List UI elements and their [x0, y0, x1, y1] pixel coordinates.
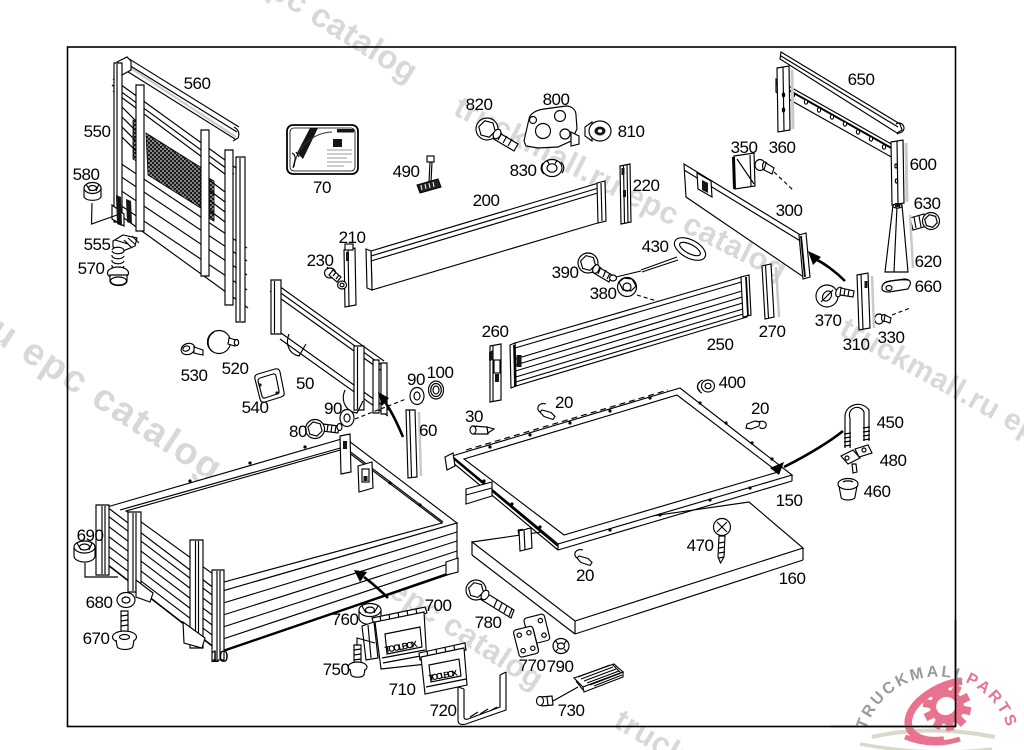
svg-text:20: 20 — [576, 566, 594, 585]
svg-text:250: 250 — [707, 335, 734, 354]
svg-text:330: 330 — [878, 328, 905, 347]
svg-text:90: 90 — [324, 399, 342, 418]
svg-text:360: 360 — [769, 138, 796, 157]
svg-text:490: 490 — [393, 162, 420, 181]
svg-text:830: 830 — [510, 161, 537, 180]
svg-text:100: 100 — [427, 363, 454, 382]
svg-text:810: 810 — [618, 122, 645, 141]
svg-text:430: 430 — [642, 237, 669, 256]
svg-text:680: 680 — [86, 593, 113, 612]
svg-text:90: 90 — [407, 370, 425, 389]
svg-text:650: 650 — [848, 70, 875, 89]
svg-text:310: 310 — [843, 335, 870, 354]
svg-text:380: 380 — [590, 284, 617, 303]
svg-text:370: 370 — [815, 311, 842, 330]
svg-text:520: 520 — [222, 359, 249, 378]
svg-text:790: 790 — [547, 657, 574, 676]
svg-text:30: 30 — [465, 407, 483, 426]
svg-text:540: 540 — [242, 398, 269, 417]
svg-text:700: 700 — [425, 596, 452, 615]
svg-text:550: 550 — [84, 122, 111, 141]
svg-text:20: 20 — [751, 399, 769, 418]
svg-text:450: 450 — [877, 413, 904, 432]
svg-text:480: 480 — [880, 451, 907, 470]
svg-text:800: 800 — [543, 90, 570, 109]
svg-text:820: 820 — [466, 95, 493, 114]
svg-text:80: 80 — [289, 422, 307, 441]
svg-text:260: 260 — [482, 322, 509, 341]
svg-text:160: 160 — [779, 569, 806, 588]
svg-text:70: 70 — [313, 178, 331, 197]
svg-text:770: 770 — [519, 656, 546, 675]
svg-text:780: 780 — [475, 613, 502, 632]
svg-text:200: 200 — [473, 191, 500, 210]
svg-text:580: 580 — [73, 165, 100, 184]
svg-text:470: 470 — [687, 536, 714, 555]
svg-text:10: 10 — [210, 647, 228, 666]
svg-text:560: 560 — [184, 74, 211, 93]
svg-text:760: 760 — [332, 610, 359, 629]
svg-text:150: 150 — [776, 491, 803, 510]
svg-text:270: 270 — [759, 322, 786, 341]
svg-text:690: 690 — [77, 526, 104, 545]
svg-text:750: 750 — [323, 660, 350, 679]
svg-text:50: 50 — [296, 374, 314, 393]
svg-text:350: 350 — [731, 138, 758, 157]
svg-text:670: 670 — [83, 629, 110, 648]
svg-text:400: 400 — [719, 373, 746, 392]
svg-text:660: 660 — [915, 277, 942, 296]
svg-text:60: 60 — [419, 421, 437, 440]
svg-text:555: 555 — [84, 235, 111, 254]
svg-text:630: 630 — [914, 194, 941, 213]
svg-text:710: 710 — [389, 680, 416, 699]
svg-text:220: 220 — [633, 176, 660, 195]
svg-text:460: 460 — [864, 482, 891, 501]
svg-text:730: 730 — [558, 701, 585, 720]
svg-text:20: 20 — [555, 393, 573, 412]
svg-text:300: 300 — [776, 201, 803, 220]
svg-text:530: 530 — [181, 366, 208, 385]
svg-text:230: 230 — [307, 251, 334, 270]
svg-text:600: 600 — [910, 155, 937, 174]
svg-text:620: 620 — [915, 252, 942, 271]
svg-text:210: 210 — [339, 228, 366, 247]
svg-text:720: 720 — [430, 701, 457, 720]
svg-text:390: 390 — [552, 263, 579, 282]
svg-text:570: 570 — [78, 259, 105, 278]
